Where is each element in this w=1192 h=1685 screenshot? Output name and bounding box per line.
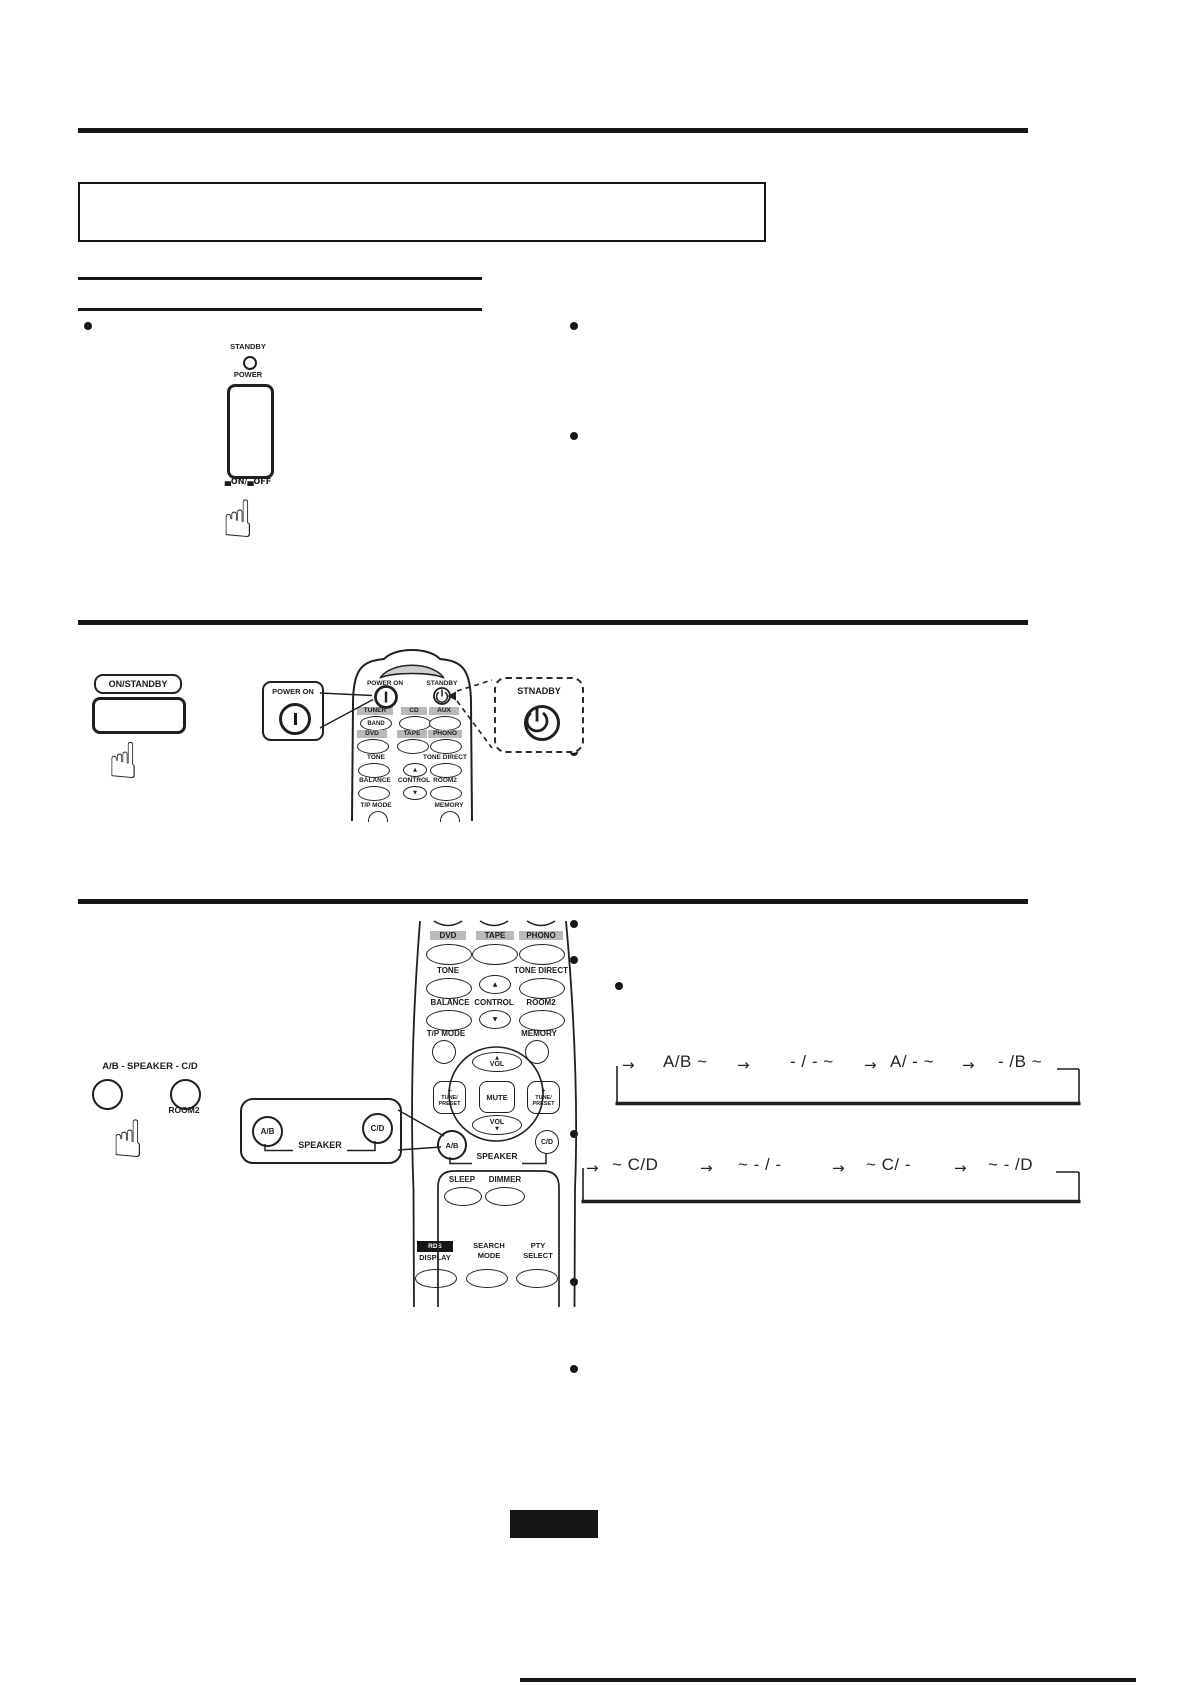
tp-mode-button (432, 1040, 456, 1064)
flow2-arrow: → (832, 1159, 845, 1177)
control-up-button: ▲ (479, 975, 511, 994)
mute-label: MUTE (486, 1093, 507, 1102)
band-button: BAND (360, 716, 392, 731)
flow2-state-1: ~ C/D (612, 1155, 658, 1175)
remote-outline (566, 921, 576, 1307)
flow2-arrow: → (700, 1159, 713, 1177)
callout-line (320, 693, 372, 696)
heading-underline-1 (78, 277, 482, 280)
line-art-overlay (0, 0, 1192, 1685)
aux-label: AUX (429, 707, 459, 715)
manual-page: STANDBY POWER ▄ON/▄OFF ☝ ON/STANDBY ☝ PO… (0, 0, 1192, 1685)
sleep-label: SLEEP (441, 1175, 483, 1184)
tone-direct-button (519, 978, 565, 999)
vol-up-button: ▲ VOL (472, 1052, 522, 1072)
tape-label: TAPE (397, 730, 427, 738)
phono-button (519, 944, 565, 965)
phono-label: PHONO (519, 931, 563, 940)
dvd-label: DVD (357, 730, 387, 738)
remote-power-on-label: POWER ON (358, 680, 412, 687)
room2-button (430, 786, 462, 801)
preset-label: PRESET (532, 1101, 554, 1107)
balance-button (358, 786, 390, 801)
speaker-ab-button: A/B (437, 1130, 467, 1160)
bullet (615, 982, 623, 990)
ab-label: A/B (261, 1127, 275, 1136)
dvd-button (426, 944, 472, 965)
standby-callout-label: STNADBY (496, 686, 582, 696)
bullet (84, 322, 92, 330)
flow2-state-3: ~ C/ - (866, 1155, 911, 1175)
remote-standby-label: STANDBY (417, 680, 467, 687)
standby-led-icon (243, 356, 257, 370)
power-on-callout-label: POWER ON (264, 688, 322, 696)
up-triangle-icon: ▲ (493, 981, 498, 988)
tone-button (358, 763, 390, 778)
speaker-bracket (522, 1153, 546, 1164)
room2-label: ROOM2 (517, 998, 565, 1007)
dashed-callout-line (457, 701, 492, 748)
bullet (570, 432, 578, 440)
flow1-arrow: → (962, 1056, 975, 1074)
ir-window-icon (380, 665, 444, 678)
memory-label: MEMORY (430, 802, 468, 810)
pty-select-button (516, 1269, 558, 1288)
band-label: BAND (367, 721, 384, 727)
pointing-hand-icon: ☝ (112, 1112, 144, 1168)
display-label: DISPLAY (413, 1254, 457, 1262)
down-triangle-icon: ▼ (413, 790, 417, 796)
tune-preset-plus-button: + TUNE/ PRESET (527, 1081, 560, 1114)
flow2-arrow: → (954, 1159, 967, 1177)
bottom-rule (520, 1678, 1136, 1682)
memory-button (440, 811, 460, 822)
on-standby-label: ON/STANDBY (109, 679, 168, 689)
tape-label: TAPE (476, 931, 514, 940)
section-divider (78, 899, 1028, 904)
cd-label: C/D (541, 1139, 553, 1146)
tone-direct-label: TONE DIRECT (506, 966, 576, 975)
room2-label: ROOM2 (428, 777, 462, 785)
on-standby-keycap: ON/STANDBY (94, 674, 182, 694)
mode-label: MODE (466, 1252, 512, 1260)
tape-button (472, 944, 518, 965)
speaker-cd-button: C/D (535, 1130, 559, 1154)
top-rule (78, 128, 1028, 133)
up-triangle-icon: ▲ (413, 767, 417, 773)
phono-label: PHONO (428, 730, 462, 738)
front-power-button (227, 384, 274, 479)
rds-tag: RDS (417, 1241, 453, 1252)
clipped-button-arc (434, 921, 462, 926)
aux-button (429, 716, 461, 731)
tp-mode-button (368, 811, 388, 822)
callout-ab-button: A/B (252, 1116, 283, 1147)
power-on-callout: POWER ON (262, 681, 324, 741)
tune-preset-minus-button: − TUNE/ PRESET (433, 1081, 466, 1114)
mute-button: MUTE (479, 1081, 515, 1113)
tape-button (397, 739, 429, 754)
balance-button (426, 1010, 472, 1031)
memory-button (525, 1040, 549, 1064)
down-triangle-icon: ▼ (493, 1016, 498, 1023)
flow1-arrow: → (864, 1056, 877, 1074)
power-bar-icon (294, 713, 297, 725)
pty-label: PTY (516, 1242, 560, 1250)
section-divider (78, 620, 1028, 625)
bullet (570, 1130, 578, 1138)
phono-button (430, 739, 462, 754)
room2-front-label: ROOM2 (162, 1106, 206, 1115)
front-power-label: POWER (218, 371, 278, 379)
power-on-callout-ring-icon (279, 703, 311, 735)
speaker-bracket-label: SPEAKER (474, 1152, 520, 1161)
heading-underline-2 (78, 308, 482, 311)
tuner-label: TUNER (357, 707, 393, 715)
cd-button (399, 716, 431, 731)
front-onoff-label: ▄ON/▄OFF (200, 477, 296, 486)
flow2-state-2: ~ - / - (738, 1155, 782, 1175)
flow1-state-1: A/B ~ (663, 1052, 708, 1072)
control-down-button: ▼ (479, 1010, 511, 1029)
tp-mode-label: T/P MODE (353, 802, 399, 810)
bullet (570, 920, 578, 928)
tone-label: TONE (358, 754, 394, 762)
dimmer-button (485, 1187, 525, 1206)
memory-label: MEMORY (511, 1029, 567, 1038)
flow1-arrow: → (737, 1056, 750, 1074)
search-mode-button (466, 1269, 508, 1288)
flow1-state-2: - / - ~ (790, 1052, 834, 1072)
tone-label: TONE (428, 966, 468, 975)
dvd-label: DVD (430, 931, 466, 940)
page-number-block (510, 1510, 598, 1538)
room2-button (519, 1010, 565, 1031)
flow2-arrow: → (586, 1159, 599, 1177)
bullet (570, 1278, 578, 1286)
control-up-button: ▲ (403, 763, 427, 777)
bullet (570, 1365, 578, 1373)
standby-callout-ring-icon (524, 705, 560, 741)
cd-label: C/D (371, 1124, 385, 1133)
standby-callout: STNADBY (494, 677, 584, 753)
control-label: CONTROL (468, 998, 520, 1007)
tone-button (426, 978, 472, 999)
tone-direct-label: TONE DIRECT (420, 754, 470, 762)
sleep-button (444, 1187, 482, 1206)
vol-down-button: VOL ▼ (472, 1115, 522, 1135)
speaker-ab-front-button (92, 1079, 123, 1110)
bullet (570, 956, 578, 964)
arrowhead-icon (448, 692, 457, 701)
flow2-state-4: ~ - /D (988, 1155, 1033, 1175)
flow1-state-4: - /B ~ (998, 1052, 1042, 1072)
tp-mode-label: T/P MODE (418, 1029, 474, 1038)
remote-power-on-button (376, 687, 397, 708)
flow1-state-3: A/ - ~ (890, 1052, 934, 1072)
select-label: SELECT (516, 1252, 560, 1260)
on-standby-button (92, 697, 186, 734)
dvd-button (357, 739, 389, 754)
dimmer-label: DIMMER (481, 1175, 529, 1184)
control-down-button: ▼ (403, 786, 427, 800)
tone-direct-button (430, 763, 462, 778)
callout-cd-button: C/D (362, 1113, 393, 1144)
rds-display-button (415, 1269, 457, 1288)
search-label: SEARCH (466, 1242, 512, 1250)
remote-standby-button (434, 688, 450, 704)
cd-label: CD (401, 707, 427, 715)
callout-line (398, 1110, 444, 1136)
vol-label: VOL (490, 1061, 504, 1069)
rds-label: RDS (428, 1243, 442, 1250)
front-speaker-label: A/B - SPEAKER - C/D (88, 1062, 212, 1072)
clipped-button-arc (480, 921, 508, 926)
standby-symbol-icon (437, 692, 448, 702)
title-box (78, 182, 766, 242)
balance-label: BALANCE (354, 777, 396, 785)
ab-label: A/B (446, 1141, 459, 1150)
pointing-hand-icon: ☝ (108, 734, 138, 788)
flow1-arrow: → (622, 1056, 635, 1074)
preset-label: PRESET (438, 1101, 460, 1107)
callout-line (398, 1147, 441, 1150)
bullet (570, 322, 578, 330)
clipped-button-arc (527, 921, 555, 926)
callout-speaker-label: SPEAKER (294, 1140, 346, 1150)
down-triangle-icon: ▼ (495, 1127, 499, 1132)
front-standby-label: STANDBY (218, 343, 278, 351)
pointing-hand-icon: ☝ (222, 492, 254, 548)
